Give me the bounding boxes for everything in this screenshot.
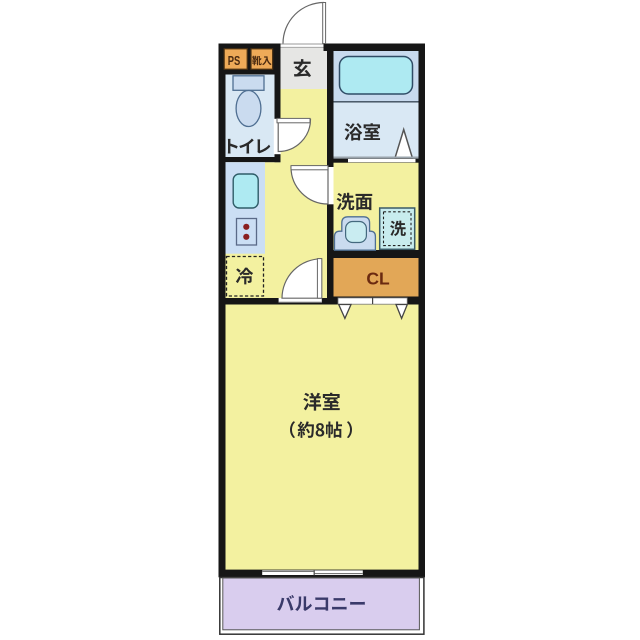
svg-text:CL: CL	[366, 269, 390, 289]
svg-text:PS: PS	[228, 54, 241, 68]
